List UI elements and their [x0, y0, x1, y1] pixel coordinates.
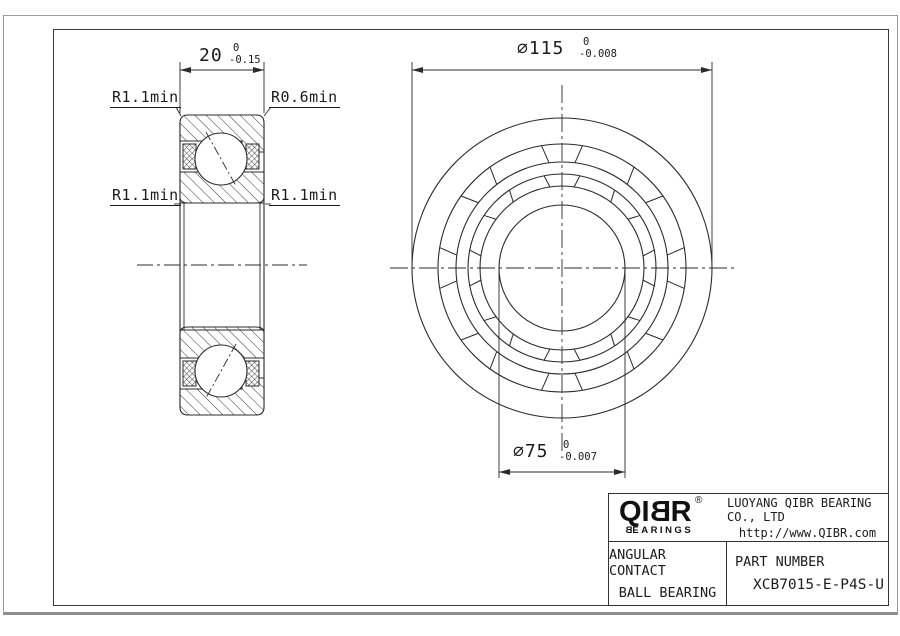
cage-pocket-edge [646, 196, 663, 203]
cage-pocket-edge [611, 334, 615, 346]
bore-dim-arrow-right [614, 469, 625, 475]
product-type-cell: ANGULAR CONTACT BALL BEARING [609, 542, 727, 605]
product-type-line1: ANGULAR CONTACT [609, 547, 726, 579]
cage-pocket-edge [440, 248, 457, 256]
bore-dim-arrow-left [499, 469, 510, 475]
od-dim-tol-upper: 0 [579, 36, 617, 48]
bore-dim-tol-lower: -0.007 [559, 451, 597, 463]
cage-pocket-edge [542, 373, 550, 390]
radius-label-bottom-left: R1.1min [110, 186, 181, 206]
cage-pocket-edge [628, 317, 640, 321]
logo-bearings-text: BEARINGS [623, 525, 693, 536]
cage-pocket-edge [461, 196, 478, 203]
part-number-value: XCB7015-E-P4S-U [735, 577, 888, 593]
width-dim-tolerance: 0 -0.15 [229, 42, 261, 66]
radius-label-top-left: R1.1min [110, 88, 181, 108]
od-dim-tol-lower: -0.008 [579, 48, 617, 60]
logo-cell: QIBR ® BEARINGS [609, 494, 727, 541]
cage-pocket-edge [628, 215, 640, 219]
cage-pocket-edge [667, 281, 684, 289]
cage-pocket-edge [627, 167, 634, 184]
title-block-header-row: QIBR ® BEARINGS LUOYANG QIBR BEARING CO.… [609, 494, 888, 542]
logo-sub-flipped-b: B [623, 525, 632, 536]
product-type-line2: BALL BEARING [619, 585, 717, 601]
bore-dim-tolerance: 0 -0.007 [559, 439, 597, 463]
cage-pocket-edge [470, 250, 481, 256]
cage-pocket-edge [440, 281, 457, 289]
logo-prefix: QI [619, 496, 650, 528]
leader-top-right [264, 107, 271, 116]
registered-mark: ® [695, 495, 702, 506]
cage-pocket-edge [484, 215, 496, 219]
width-dim-tol-lower: -0.15 [229, 54, 261, 66]
od-dim-tolerance: 0 -0.008 [579, 36, 617, 60]
radius-label-bottom-right: R1.1min [269, 186, 340, 206]
cage-pocket-edge [490, 352, 497, 369]
part-number-cell: PART NUMBER XCB7015-E-P4S-U [727, 542, 888, 605]
cage-pocket-edge [490, 167, 497, 184]
drawing-sheet: R1.1min R0.6min R1.1min R1.1min 20 0 -0.… [0, 0, 900, 636]
cage-pocket-edge [643, 250, 654, 256]
cage-pocket-edge [646, 333, 663, 340]
front-view [390, 62, 738, 478]
bore-dim-tol-upper: 0 [559, 439, 597, 451]
cage-pocket-edge [470, 280, 481, 286]
company-website: http://www.QIBR.com [739, 526, 876, 540]
cage-pocket-edge [484, 317, 496, 321]
cage-pocket-edge [544, 349, 550, 360]
company-cell: LUOYANG QIBR BEARING CO., LTD http://www… [727, 494, 888, 541]
cage-block-bottom-right [246, 361, 259, 386]
part-number-label: PART NUMBER [735, 554, 888, 570]
cage-block-top-left [183, 144, 196, 169]
logo-suffix: R [671, 496, 692, 528]
title-block-detail-row: ANGULAR CONTACT BALL BEARING PART NUMBER… [609, 542, 888, 605]
cage-pocket-edge [643, 280, 654, 286]
section-view [137, 62, 307, 415]
cage-pocket-edge [542, 146, 550, 163]
title-block: QIBR ® BEARINGS LUOYANG QIBR BEARING CO.… [608, 493, 889, 606]
cage-block-top-right [246, 144, 259, 169]
od-dim-value: ⌀115 [517, 38, 564, 59]
cage-pocket-edge [611, 190, 615, 202]
cage-pocket-edge [667, 248, 684, 256]
cage-pocket-edge [461, 333, 478, 340]
od-dim-arrow-left [412, 67, 423, 73]
width-dim-value: 20 [199, 45, 223, 66]
cage-pocket-edge [574, 176, 580, 187]
radius-label-top-right: R0.6min [269, 88, 340, 108]
cage-pocket-edge [627, 352, 634, 369]
logo-sub-rest: EARINGS [632, 525, 693, 536]
cage-block-bottom-left [183, 361, 196, 386]
od-dim-arrow-right [701, 67, 712, 73]
width-dim-arrow-left [180, 67, 191, 73]
cage-pocket-edge [575, 146, 583, 163]
width-dim-arrow-right [253, 67, 264, 73]
width-dim-tol-upper: 0 [229, 42, 261, 54]
cage-pocket-edge [574, 349, 580, 360]
company-name: LUOYANG QIBR BEARING CO., LTD [727, 496, 888, 524]
cage-pocket-edge [544, 176, 550, 187]
cage-pocket-edge [509, 190, 513, 202]
bore-dim-value: ⌀75 [513, 441, 549, 462]
cage-pocket-edge [509, 334, 513, 346]
cage-pocket-edge [575, 373, 583, 390]
